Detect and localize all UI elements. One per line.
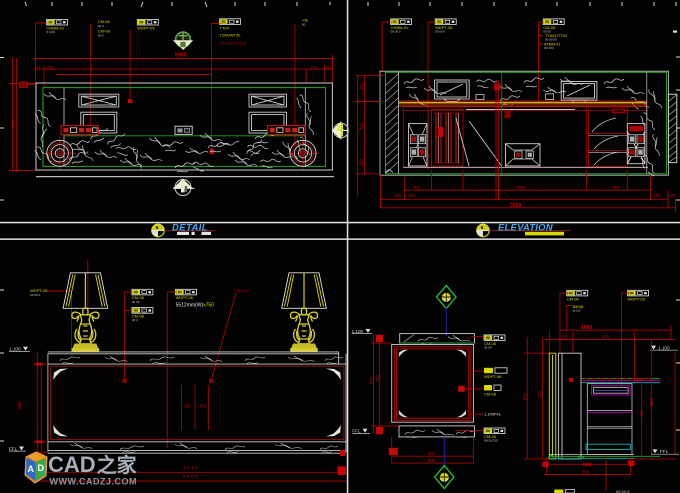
svg-text:0 0 0: 0 0 0 [573,309,581,313]
svg-text:FFL: FFL [9,446,18,451]
svg-text:800: 800 [369,376,374,384]
svg-text:750: 750 [359,122,364,130]
svg-text:1.100: 1.100 [352,329,364,334]
svg-text:80: 80 [36,64,41,69]
svg-text:WDPT-06: WDPT-06 [176,295,194,300]
svg-text:00 00: 00 00 [132,300,140,304]
svg-text:T204/WT20: T204/WT20 [220,33,242,38]
svg-text:670: 670 [603,335,611,340]
svg-text:5900: 5900 [183,474,199,479]
svg-text:WWW.CADZJ.COM: WWW.CADZJ.COM [50,477,138,487]
svg-text:1100: 1100 [649,397,654,407]
svg-text:150: 150 [669,193,677,198]
svg-text:00(2)x750: 00(2)x750 [484,439,498,443]
svg-text:CM-06: CM-06 [567,297,580,302]
svg-text:CM-08: CM-08 [484,391,497,396]
svg-text:TTA01/02: TTA01/02 [234,289,250,293]
svg-text:5900: 5900 [175,53,187,59]
svg-text:00 0: 00 0 [132,318,138,322]
svg-text:1.100: 1.100 [658,345,670,350]
svg-text:TT04: TT04 [220,26,230,31]
svg-text:WDPT-05: WDPT-05 [628,297,646,302]
svg-text:00 00 0: 00 00 0 [391,30,401,34]
svg-text:FFL: FFL [660,449,669,454]
svg-text:1940: 1940 [516,185,526,190]
svg-text:800: 800 [428,451,436,456]
svg-text:850: 850 [413,185,421,190]
svg-text:750: 750 [184,404,192,409]
svg-text:00 00 0: 00 00 0 [30,293,40,297]
svg-text:100: 100 [394,193,402,198]
svg-text:463: 463 [199,404,207,409]
svg-text:00 00 0: 00 00 0 [544,46,554,50]
svg-text:950: 950 [613,185,621,190]
svg-text:FFL: FFL [352,429,361,434]
svg-text:800: 800 [523,392,528,400]
svg-text:3010: 3010 [183,465,199,470]
svg-text:750: 750 [538,390,543,398]
svg-text:750: 750 [375,374,380,382]
svg-text:00 0: 00 0 [98,33,104,37]
svg-text:00: 00 [466,337,470,341]
svg-text:1000: 1000 [581,325,592,331]
svg-text:1.100: 1.100 [9,347,21,352]
svg-text:WDPT-05: WDPT-05 [137,25,155,30]
svg-text:350: 350 [359,158,364,166]
svg-text:800: 800 [11,120,16,128]
svg-text:800: 800 [17,401,22,409]
svg-text:150: 150 [561,335,569,340]
svg-text:TTA01/1TT22: TTA01/1TT22 [220,41,247,46]
svg-text:D: D [38,463,45,473]
svg-text:CAD之家: CAD之家 [48,452,138,477]
svg-text:00 00 0: 00 00 0 [616,489,630,493]
svg-text:700: 700 [640,409,645,417]
svg-text:00 0: 00 0 [98,24,104,28]
svg-text:100: 100 [654,193,662,198]
svg-text:850: 850 [582,470,590,475]
svg-text:1.100FFL: 1.100FFL [484,412,502,417]
svg-text:600: 600 [428,458,436,463]
svg-text:600: 600 [583,462,592,468]
svg-text:WDPT-06: WDPT-06 [484,374,502,379]
svg-text:5512mm(W)x750: 5512mm(W)x750 [176,303,215,309]
svg-text:00 00: 00 00 [484,345,492,349]
svg-text:A: A [28,464,35,474]
svg-text:00: 00 [302,22,306,26]
svg-text:162: 162 [325,64,332,69]
svg-text:00 00 0: 00 00 0 [435,30,445,34]
svg-text:850: 850 [47,64,54,69]
svg-text:150: 150 [359,82,364,90]
svg-text:3500: 3500 [510,203,521,209]
svg-text:150: 150 [408,193,416,198]
svg-text:749: 749 [310,64,317,69]
svg-text:0 0 00: 0 0 00 [47,30,56,34]
